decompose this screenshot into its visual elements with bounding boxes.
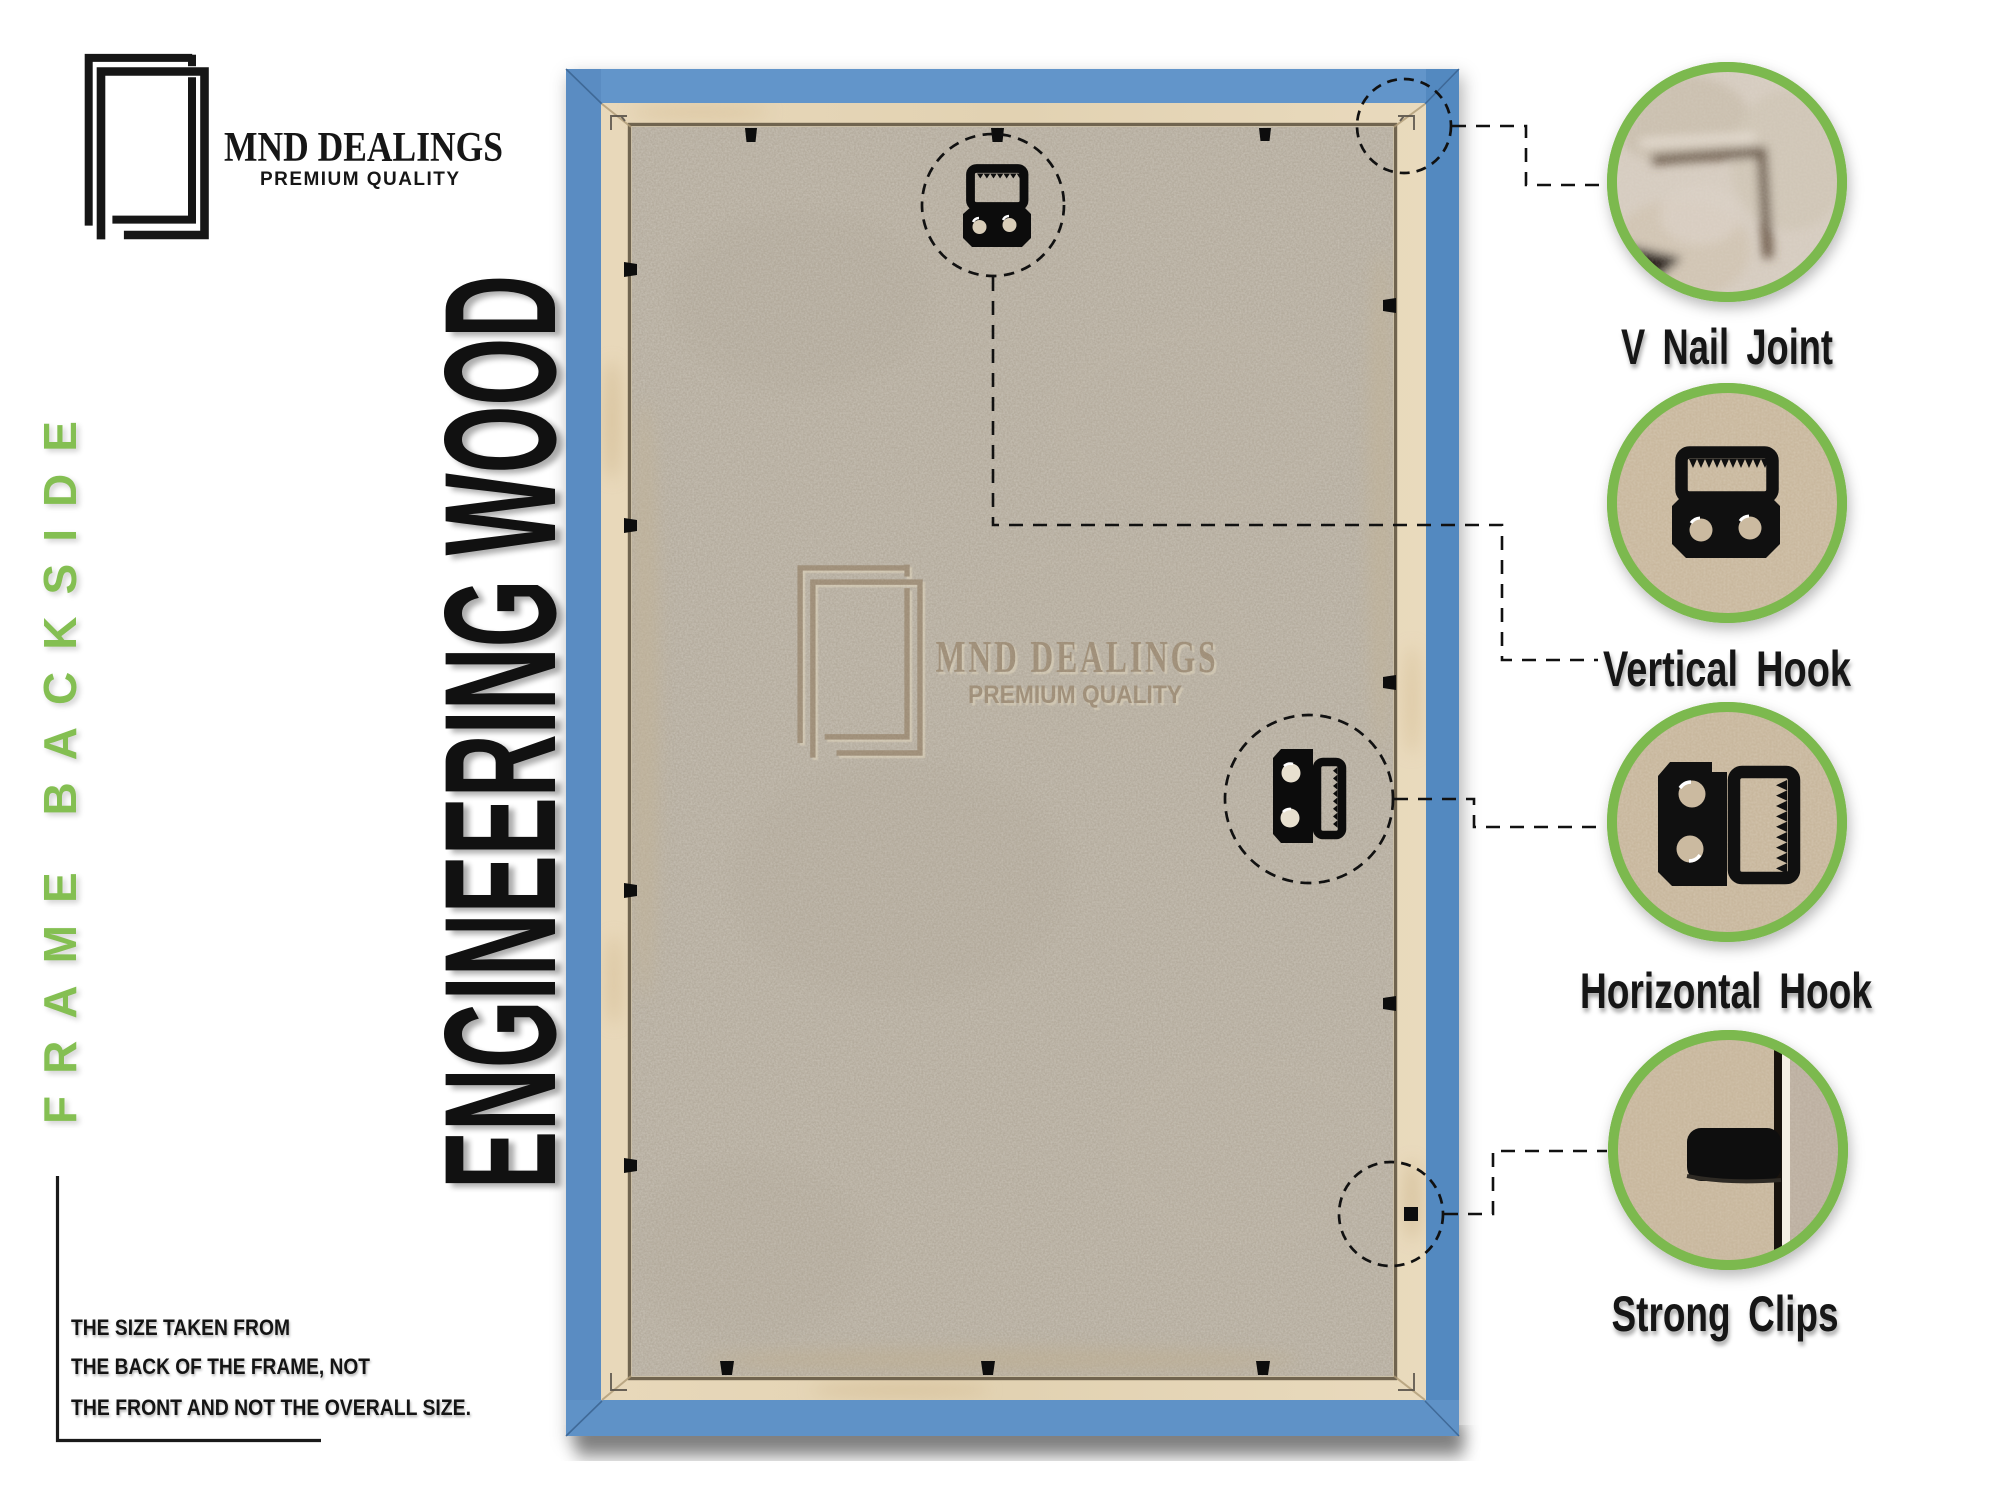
svg-text:THE SIZE TAKEN FROM: THE SIZE TAKEN FROM bbox=[71, 1315, 290, 1340]
svg-text:MND DEALINGS: MND DEALINGS bbox=[224, 125, 503, 171]
svg-text:V Nail Joint: V Nail Joint bbox=[1621, 319, 1833, 375]
svg-text:FRAME BACKSIDE: FRAME BACKSIDE bbox=[34, 421, 86, 1124]
svg-text:Horizontal Hook: Horizontal Hook bbox=[1580, 963, 1872, 1019]
svg-text:Vertical Hook: Vertical Hook bbox=[1603, 641, 1851, 697]
svg-text:MND DEALINGS: MND DEALINGS bbox=[936, 632, 1219, 682]
svg-text:THE BACK OF THE FRAME, NOT: THE BACK OF THE FRAME, NOT bbox=[71, 1354, 370, 1379]
svg-text:PREMIUM QUALITY: PREMIUM QUALITY bbox=[968, 681, 1182, 709]
svg-text:PREMIUM QUALITY: PREMIUM QUALITY bbox=[260, 169, 459, 190]
svg-text:Strong Clips: Strong Clips bbox=[1612, 1286, 1839, 1342]
svg-text:ENGINEERING WOOD: ENGINEERING WOOD bbox=[411, 275, 589, 1189]
svg-text:THE FRONT AND NOT THE OVERALL: THE FRONT AND NOT THE OVERALL SIZE. bbox=[71, 1395, 471, 1420]
